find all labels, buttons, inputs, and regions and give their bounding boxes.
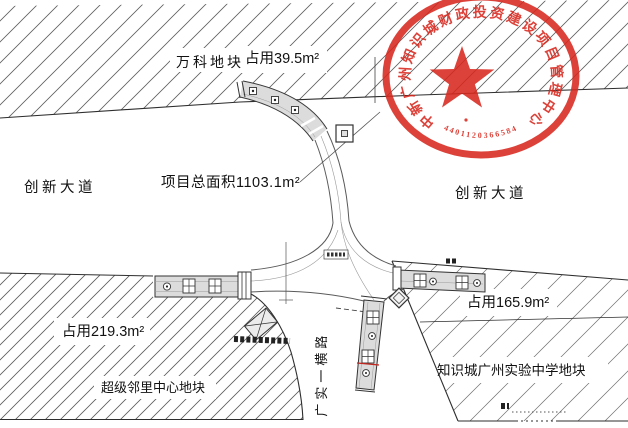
label-avenue-left: 创新大道 <box>24 181 96 197</box>
label-super-neighborhood-parcel: 超级邻里中心地块 <box>101 381 205 395</box>
label-vertical-road: 广实一横路 <box>315 319 329 428</box>
label-avenue-right: 创新大道 <box>455 187 527 203</box>
seal-dot <box>464 118 467 121</box>
square-symbol <box>336 125 353 142</box>
junction-micro-label <box>324 250 348 259</box>
label-occupy-left: 占用219.3m² <box>62 325 144 341</box>
road-junction-lines <box>251 112 404 313</box>
left-corridor <box>155 272 251 299</box>
label-wanke-parcel: 万科地块 <box>176 55 244 70</box>
label-project-total-area: 项目总面积1103.1m² <box>161 176 300 192</box>
site-plan-drawing: 中新广州知识城财政投资建设项目管理中心 4401120366584 万科地块 占… <box>0 0 628 428</box>
svg-text:4401120366584: 4401120366584 <box>443 123 520 140</box>
label-occupy-top: 占用39.5m² <box>245 52 319 68</box>
south-corridor <box>355 296 387 392</box>
label-school-parcel: 知识城广州实验中学地块 <box>437 364 586 379</box>
seal-serial-number: 4401120366584 <box>443 123 520 140</box>
label-occupy-right: 占用165.9m² <box>467 296 549 312</box>
